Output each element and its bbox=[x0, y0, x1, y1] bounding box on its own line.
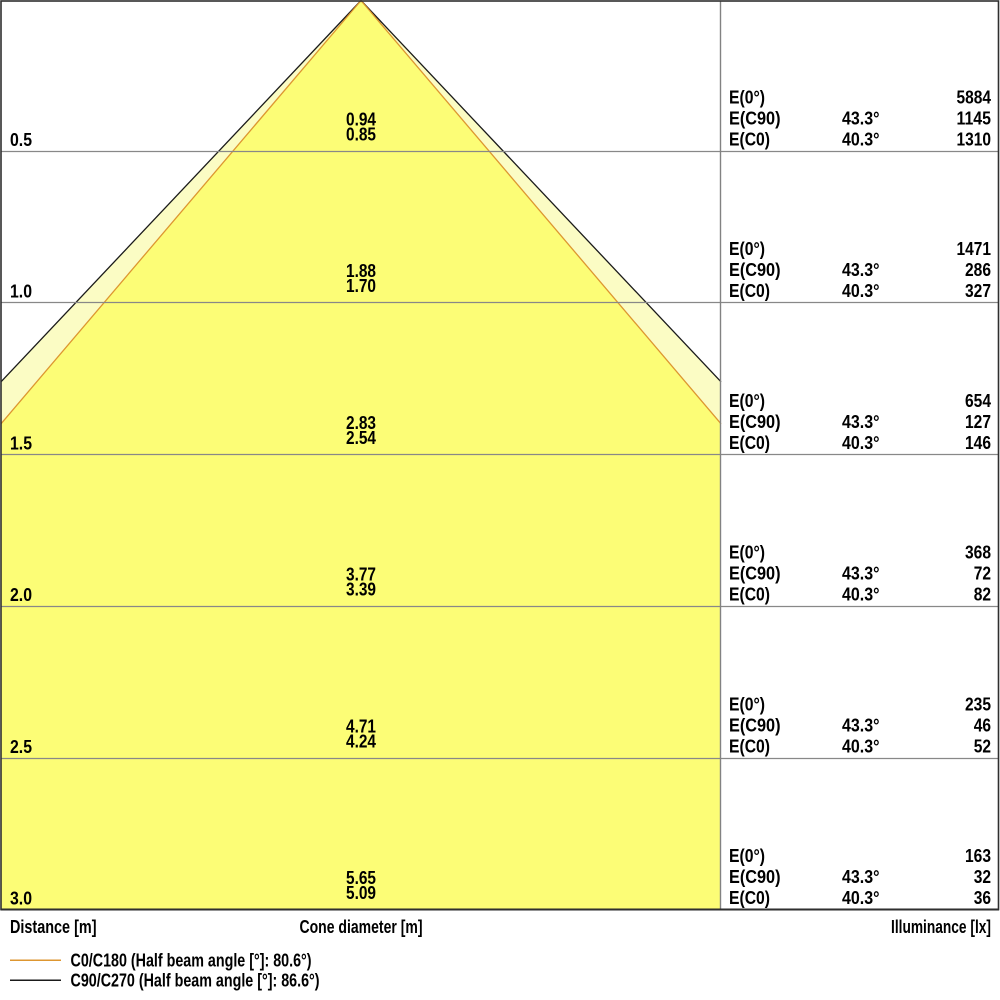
svg-text:286: 286 bbox=[965, 260, 991, 280]
svg-text:1.0: 1.0 bbox=[10, 281, 32, 301]
svg-text:Distance [m]: Distance [m] bbox=[10, 917, 97, 937]
svg-text:32: 32 bbox=[974, 867, 991, 887]
svg-text:3.39: 3.39 bbox=[346, 580, 376, 600]
svg-text:43.3°: 43.3° bbox=[842, 867, 880, 887]
svg-text:E(C0): E(C0) bbox=[729, 281, 770, 301]
svg-text:1310: 1310 bbox=[957, 130, 992, 150]
svg-text:C0/C180 (Half beam angle [°]:: C0/C180 (Half beam angle [°]: 80.6°) bbox=[71, 951, 312, 971]
svg-text:E(0°): E(0°) bbox=[729, 695, 765, 715]
svg-text:E(C0): E(C0) bbox=[729, 737, 770, 757]
svg-text:E(C90): E(C90) bbox=[729, 867, 781, 887]
svg-text:E(C90): E(C90) bbox=[729, 412, 781, 432]
svg-text:5884: 5884 bbox=[957, 88, 992, 108]
svg-text:52: 52 bbox=[974, 737, 991, 757]
svg-text:43.3°: 43.3° bbox=[842, 564, 880, 584]
svg-text:40.3°: 40.3° bbox=[842, 433, 880, 453]
svg-text:43.3°: 43.3° bbox=[842, 109, 880, 129]
svg-text:2.5: 2.5 bbox=[10, 737, 32, 757]
svg-text:E(0°): E(0°) bbox=[729, 543, 765, 563]
svg-text:5.09: 5.09 bbox=[346, 883, 376, 903]
svg-text:Cone diameter [m]: Cone diameter [m] bbox=[300, 917, 423, 937]
svg-text:72: 72 bbox=[974, 564, 991, 584]
svg-text:127: 127 bbox=[965, 412, 991, 432]
svg-text:43.3°: 43.3° bbox=[842, 412, 880, 432]
svg-text:0.85: 0.85 bbox=[346, 125, 376, 145]
svg-text:1.5: 1.5 bbox=[10, 433, 32, 453]
svg-text:E(C0): E(C0) bbox=[729, 433, 770, 453]
svg-text:C90/C270 (Half beam angle [°]:: C90/C270 (Half beam angle [°]: 86.6°) bbox=[71, 971, 320, 991]
svg-text:3.0: 3.0 bbox=[10, 889, 32, 909]
svg-text:E(0°): E(0°) bbox=[729, 391, 765, 411]
svg-text:0.5: 0.5 bbox=[10, 130, 32, 150]
svg-text:E(C0): E(C0) bbox=[729, 585, 770, 605]
svg-text:1145: 1145 bbox=[957, 109, 992, 129]
svg-text:E(C90): E(C90) bbox=[729, 260, 781, 280]
svg-text:163: 163 bbox=[965, 846, 991, 866]
svg-text:40.3°: 40.3° bbox=[842, 585, 880, 605]
svg-text:E(0°): E(0°) bbox=[729, 846, 765, 866]
svg-text:E(C90): E(C90) bbox=[729, 716, 781, 736]
svg-text:43.3°: 43.3° bbox=[842, 260, 880, 280]
svg-text:Illuminance [lx]: Illuminance [lx] bbox=[891, 917, 991, 937]
svg-text:E(C0): E(C0) bbox=[729, 130, 770, 150]
svg-text:E(0°): E(0°) bbox=[729, 88, 765, 108]
svg-text:40.3°: 40.3° bbox=[842, 281, 880, 301]
svg-text:40.3°: 40.3° bbox=[842, 130, 880, 150]
svg-text:235: 235 bbox=[965, 695, 991, 715]
svg-text:368: 368 bbox=[965, 543, 991, 563]
svg-text:4.24: 4.24 bbox=[346, 732, 376, 752]
svg-text:1471: 1471 bbox=[957, 239, 992, 259]
svg-text:E(C90): E(C90) bbox=[729, 564, 781, 584]
svg-text:82: 82 bbox=[974, 585, 991, 605]
svg-text:43.3°: 43.3° bbox=[842, 716, 880, 736]
svg-text:46: 46 bbox=[974, 716, 991, 736]
svg-text:E(0°): E(0°) bbox=[729, 239, 765, 259]
svg-text:E(C0): E(C0) bbox=[729, 888, 770, 908]
svg-text:146: 146 bbox=[965, 433, 991, 453]
svg-text:2.0: 2.0 bbox=[10, 585, 32, 605]
svg-text:40.3°: 40.3° bbox=[842, 737, 880, 757]
svg-text:654: 654 bbox=[965, 391, 991, 411]
svg-text:2.54: 2.54 bbox=[346, 428, 376, 448]
svg-text:327: 327 bbox=[965, 281, 991, 301]
svg-text:E(C90): E(C90) bbox=[729, 109, 781, 129]
svg-text:1.70: 1.70 bbox=[346, 276, 376, 296]
svg-text:36: 36 bbox=[974, 888, 991, 908]
svg-text:40.3°: 40.3° bbox=[842, 888, 880, 908]
